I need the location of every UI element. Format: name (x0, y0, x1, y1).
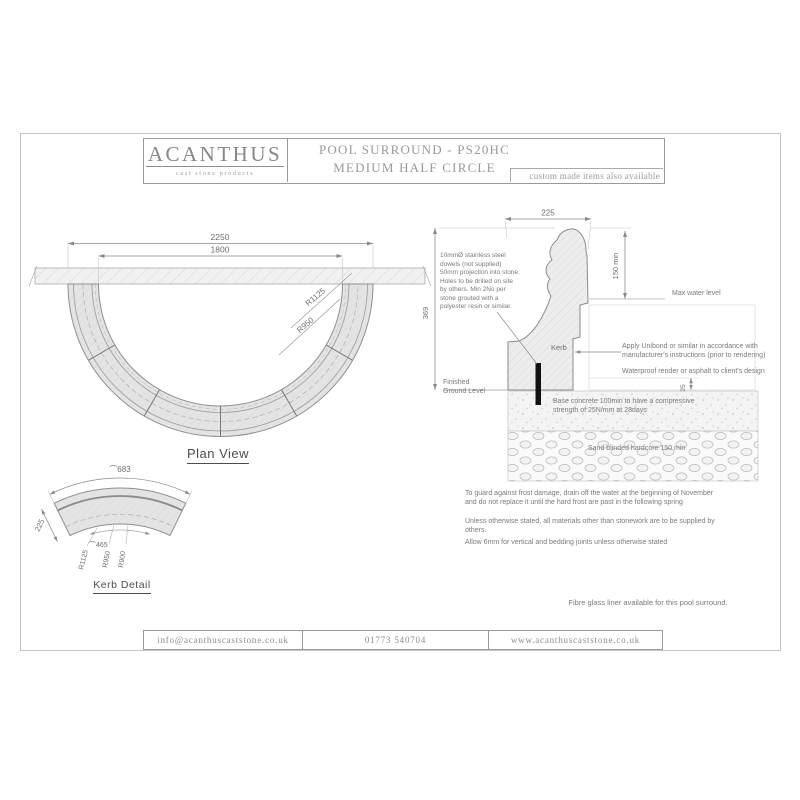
water-dim-150: 150 min (611, 253, 620, 280)
footer-phone: 01773 540704 (303, 631, 489, 649)
section-dim-225: 225 (541, 209, 555, 218)
logo-cell: ACANTHUS cast stone products (143, 138, 288, 182)
custom-items-note: custom made items also available (510, 168, 663, 182)
contact-footer: info@acanthuscaststone.co.uk 01773 54070… (143, 630, 663, 650)
kerb-text: Kerb (551, 343, 567, 352)
brand-logo: ACANTHUS (146, 144, 284, 167)
coping-kerb-profile (508, 229, 588, 390)
frost-note: To guard against frost damage, drain off… (465, 489, 720, 507)
footer-website: www.acanthuscaststone.co.uk (489, 631, 662, 649)
max-water-level-label: Max water level (672, 289, 772, 298)
arc-683-label: ⌒683 (109, 465, 131, 474)
section-dim-369: 369 (421, 307, 430, 320)
section-ext-lines (439, 221, 631, 250)
unibond-note: Apply Unibond or similar in accordance w… (622, 342, 774, 360)
base-concrete-note: Base concrete 100min to have a compressi… (553, 397, 718, 415)
kerb-radius-label-1: R1125 (78, 549, 90, 570)
dim-arc-465 (90, 530, 150, 534)
footer-email: info@acanthuscaststone.co.uk (144, 631, 303, 649)
drawing-title-line2: MEDIUM HALF CIRCLE (292, 159, 537, 177)
radius-label-mid: R950 (295, 315, 316, 335)
dim-2250: 2250 (211, 232, 230, 242)
finished-ground-level-label: Finished Ground Level (443, 378, 489, 396)
plan-view-drawing: 2250 1800 R1125 R950 (25, 225, 435, 475)
fibre-glass-liner-note: Fibre glass liner available for this poo… (548, 598, 748, 608)
kerb-radius-label-3: R900 (118, 551, 127, 569)
waterproof-render-note: Waterproof render or asphalt to client's… (622, 367, 774, 376)
kerb-detail-drawing: ⌒683 225 ⌒465 R1125 R950 R900 (35, 452, 220, 582)
hardcore-note: Sand blinded hardcore 150 min (588, 444, 728, 453)
pool-edge-strip (35, 268, 425, 284)
radius-label-outer: R1125 (304, 286, 328, 308)
hardcore-layer (508, 431, 758, 481)
drawing-title: POOL SURROUND - PS20HC MEDIUM HALF CIRCL… (292, 141, 537, 176)
arc-465-label: ⌒465 (89, 541, 108, 549)
dim-1800: 1800 (211, 245, 230, 255)
kerb-detail-caption: Kerb Detail (62, 579, 182, 594)
kerb-radius-label-2: R950 (102, 551, 112, 569)
drawing-sheet: ACANTHUS cast stone products POOL SURROU… (0, 0, 800, 800)
render-dim-25: 25 (680, 384, 687, 392)
materials-note: Unless otherwise stated, all materials o… (465, 517, 720, 535)
kerb-width-label: 225 (33, 518, 47, 533)
brand-tagline: cast stone products (176, 170, 254, 177)
dowel-note: 10mmØ stainless steel dowels (not suppli… (440, 252, 520, 312)
joints-note: Allow 6mm for vertical and bedding joint… (465, 538, 720, 547)
dowel-bar (536, 363, 542, 405)
drawing-title-line1: POOL SURROUND - PS20HC (292, 141, 537, 159)
